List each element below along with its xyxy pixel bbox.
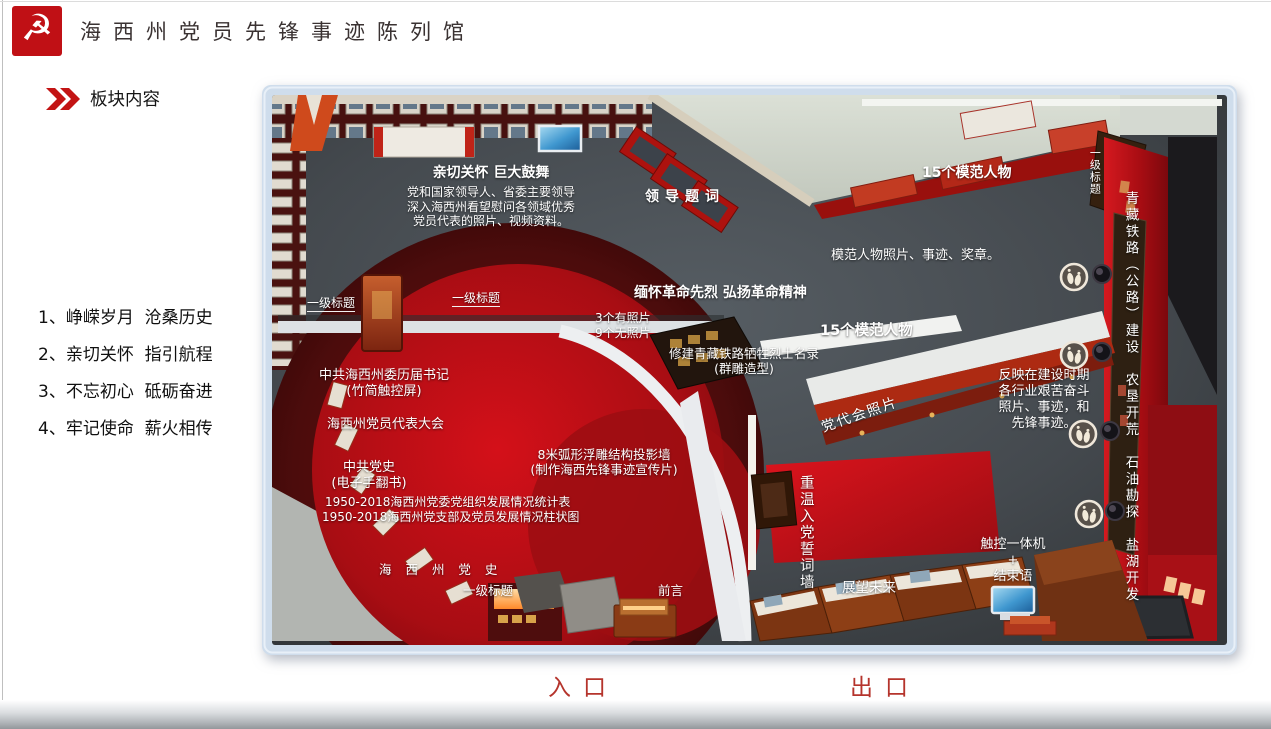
display-case xyxy=(374,127,474,157)
footprint-icon xyxy=(1076,501,1102,527)
annotation-level1-title-left2: 一级标题 xyxy=(452,291,500,306)
annotation-leader-inscriptions: 领导题词 xyxy=(645,189,725,206)
dividing-wall-top xyxy=(278,321,724,333)
tv-screen xyxy=(539,126,581,151)
annotation-arc-projection: 8米弧形浮雕结构投影墙 (制作海西先锋事迹宣传片) xyxy=(520,447,688,478)
annotation-oath-wall: 重温入党誓词墙 xyxy=(796,475,814,597)
annotation-preface: 前言 xyxy=(658,583,683,598)
slide-top-border xyxy=(0,1,1271,2)
list-item: 4、牢记使命 薪火相传 xyxy=(38,411,213,448)
annotation-qinghai-tibet: 青藏铁路（公路）建设 农垦开荒 石油勘探 盐湖开发 xyxy=(1122,191,1138,647)
floor-socket xyxy=(1093,265,1111,283)
party-emblem-icon: ☭ xyxy=(12,6,62,56)
list-item: 3、不忘初心 砥砺奋进 xyxy=(38,374,213,411)
floor-socket xyxy=(1093,343,1111,361)
annotation-level1-title-right: 一级标题 xyxy=(1088,147,1101,195)
annotation-secretaries: 中共海西州委历届书记 (竹简触控屏) xyxy=(314,368,454,400)
annotation-future-outlook: 展望未来 xyxy=(842,580,896,596)
annotation-model-figures-mid: 15个模范人物 xyxy=(820,323,913,341)
annotation-party-congress: 海西州党员代表大会 xyxy=(327,417,444,433)
section-title: 板块内容 xyxy=(90,86,160,111)
floor-socket xyxy=(1101,422,1119,440)
annotation-bar-chart: 1950-2018海西州党支部及党员发展情况柱状图 xyxy=(322,510,579,525)
annotation-martyrs-title: 缅怀革命先烈 弘扬革命精神 xyxy=(634,285,807,302)
annotation-model-figures-top: 15个模范人物 xyxy=(922,165,1011,182)
annotation-model-desc: 模范人物照片、事迹、奖章。 xyxy=(831,248,1000,264)
annotation-martyrs-roster: 修建青藏铁路牺牲烈士名录 (群雕造型) xyxy=(660,346,828,377)
party-emblem-glyph: ☭ xyxy=(21,11,53,47)
annotation-party-history: 中共党史 (电子手翻书) xyxy=(324,460,414,492)
annotation-construction-era: 反映在建设时期 各行业艰苦奋斗 照片、事迹，和 先锋事迹。 xyxy=(988,368,1100,431)
exit-label: 出口 xyxy=(850,668,920,702)
footprint-icon xyxy=(1061,342,1087,368)
slide-left-border xyxy=(2,0,3,703)
annotation-level1-title-bottom: 一级标题 xyxy=(463,583,513,598)
entrance-label: 入口 xyxy=(548,668,618,702)
floorplan-image: 亲切关怀 巨大鼓舞 党和国家领导人、省委主要领导 深入海西州看望慰问各领域优秀 … xyxy=(262,85,1237,655)
annotation-haixi-history: 海 西 州 党 史 xyxy=(379,562,502,577)
section-heading: 板块内容 xyxy=(46,86,160,111)
slide-page: { "header": { "title": "海西州党员先锋事迹陈列馆" },… xyxy=(0,0,1271,729)
plate-list: 1、峥嵘岁月 沧桑历史 2、亲切关怀 指引航程 3、不忘初心 砥砺奋进 4、牢记… xyxy=(38,300,213,448)
double-chevron-icon xyxy=(46,88,82,110)
annotation-statistics-table: 1950-2018海西州党委党组织发展情况统计表 xyxy=(325,495,570,510)
list-item: 2、亲切关怀 指引航程 xyxy=(38,337,213,374)
touch-screen xyxy=(992,587,1034,613)
page-title: 海西州党员先锋事迹陈列馆 xyxy=(80,16,476,46)
annotation-level1-title-left1: 一级标题 xyxy=(307,296,355,311)
annotation-care-block: 亲切关怀 巨大鼓舞 党和国家领导人、省委主要领导 深入海西州看望慰问各领域优秀 … xyxy=(380,165,602,229)
bottom-gradient-band xyxy=(0,700,1271,729)
list-item: 1、峥嵘岁月 沧桑历史 xyxy=(38,300,213,337)
annotation-title: 亲切关怀 巨大鼓舞 xyxy=(380,165,602,182)
footprint-icon xyxy=(1061,264,1087,290)
annotation-touch-kiosk: 触控一体机 + 结束语 xyxy=(965,537,1061,585)
annotation-photo-counts: 3个有照片 9个无照片 xyxy=(595,311,651,340)
